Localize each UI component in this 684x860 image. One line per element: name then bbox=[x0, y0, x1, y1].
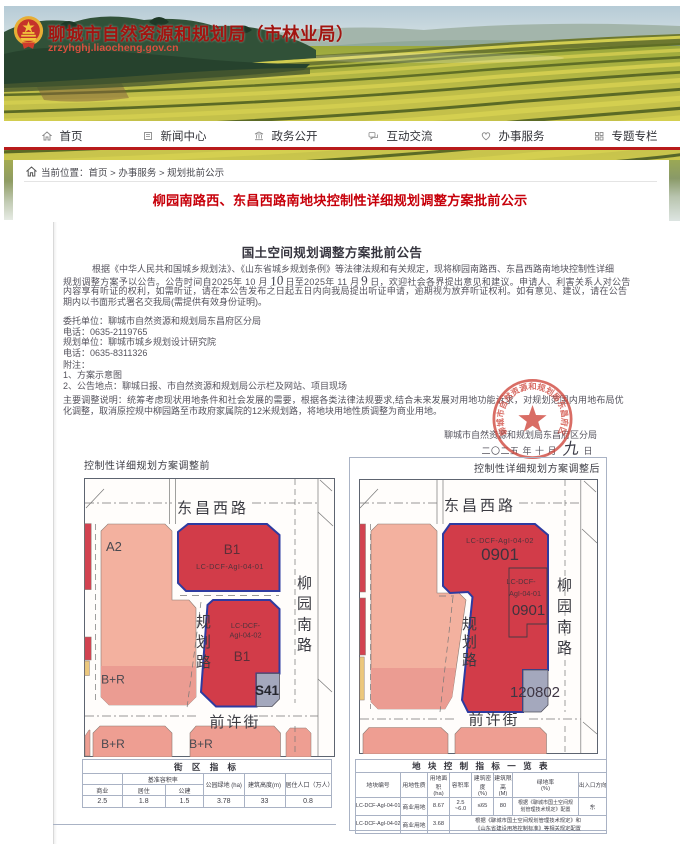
svg-text:A2: A2 bbox=[106, 539, 122, 554]
svg-text:AgI-04-02: AgI-04-02 bbox=[229, 631, 261, 640]
svg-text:AgI-04-01: AgI-04-01 bbox=[509, 589, 541, 598]
svg-text:LC-DCF-: LC-DCF- bbox=[506, 577, 536, 586]
svg-text:0901: 0901 bbox=[481, 545, 519, 564]
svg-text:东昌西路: 东昌西路 bbox=[177, 500, 249, 517]
svg-text:路: 路 bbox=[462, 652, 477, 669]
svg-text:路: 路 bbox=[557, 640, 572, 657]
svg-text:B1: B1 bbox=[224, 542, 241, 557]
svg-text:园: 园 bbox=[297, 596, 312, 613]
svg-text:前许街: 前许街 bbox=[468, 712, 519, 729]
svg-text:B+R: B+R bbox=[101, 737, 125, 751]
svg-text:规: 规 bbox=[462, 616, 477, 633]
svg-text:规: 规 bbox=[196, 614, 211, 631]
svg-text:B+R: B+R bbox=[101, 673, 125, 687]
svg-text:LC-DCF-: LC-DCF- bbox=[231, 621, 261, 630]
svg-text:路: 路 bbox=[297, 637, 312, 654]
svg-text:柳: 柳 bbox=[557, 577, 572, 594]
svg-text:南: 南 bbox=[297, 617, 312, 634]
svg-text:LC-DCF-AgI-04-02: LC-DCF-AgI-04-02 bbox=[466, 536, 534, 545]
svg-text:划: 划 bbox=[462, 634, 477, 651]
svg-text:S41: S41 bbox=[255, 683, 280, 698]
svg-text:东昌西路: 东昌西路 bbox=[444, 498, 516, 515]
svg-text:南: 南 bbox=[557, 619, 572, 636]
svg-text:B1: B1 bbox=[234, 649, 251, 664]
svg-text:前许街: 前许街 bbox=[209, 714, 260, 731]
svg-text:120802: 120802 bbox=[510, 684, 560, 701]
svg-text:园: 园 bbox=[557, 598, 572, 615]
svg-text:LC-DCF-AgI-04-01: LC-DCF-AgI-04-01 bbox=[196, 562, 264, 571]
svg-text:柳: 柳 bbox=[297, 575, 312, 592]
svg-text:0901: 0901 bbox=[512, 602, 545, 619]
svg-text:路: 路 bbox=[196, 654, 211, 671]
svg-text:B+R: B+R bbox=[189, 737, 213, 751]
svg-text:划: 划 bbox=[196, 634, 211, 651]
svg-text:聊城市自然资源和规划局东昌府区分局: 聊城市自然资源和规划局东昌府区分局 bbox=[490, 377, 570, 437]
